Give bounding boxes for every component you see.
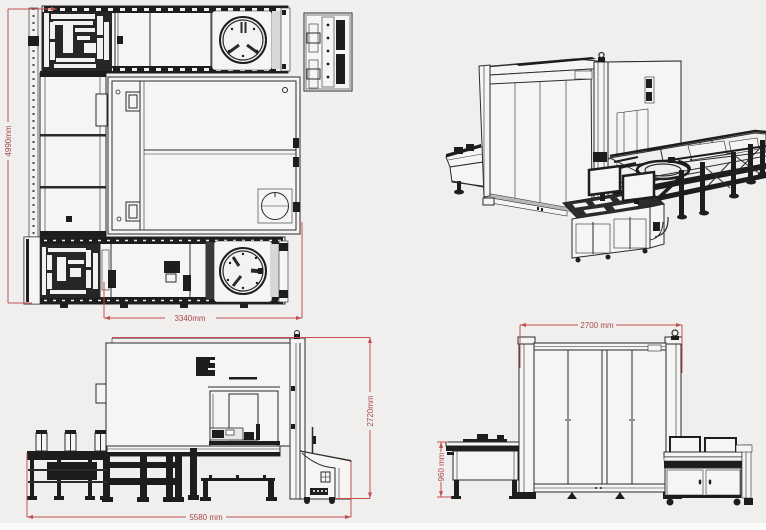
svg-text:4990mm: 4990mm <box>4 125 13 156</box>
svg-text:960 mm: 960 mm <box>437 452 446 481</box>
svg-text:2700 mm: 2700 mm <box>580 321 614 330</box>
svg-text:3340mm: 3340mm <box>174 314 205 323</box>
svg-text:5580 mm: 5580 mm <box>189 513 223 522</box>
svg-text:2720mm: 2720mm <box>366 395 375 426</box>
